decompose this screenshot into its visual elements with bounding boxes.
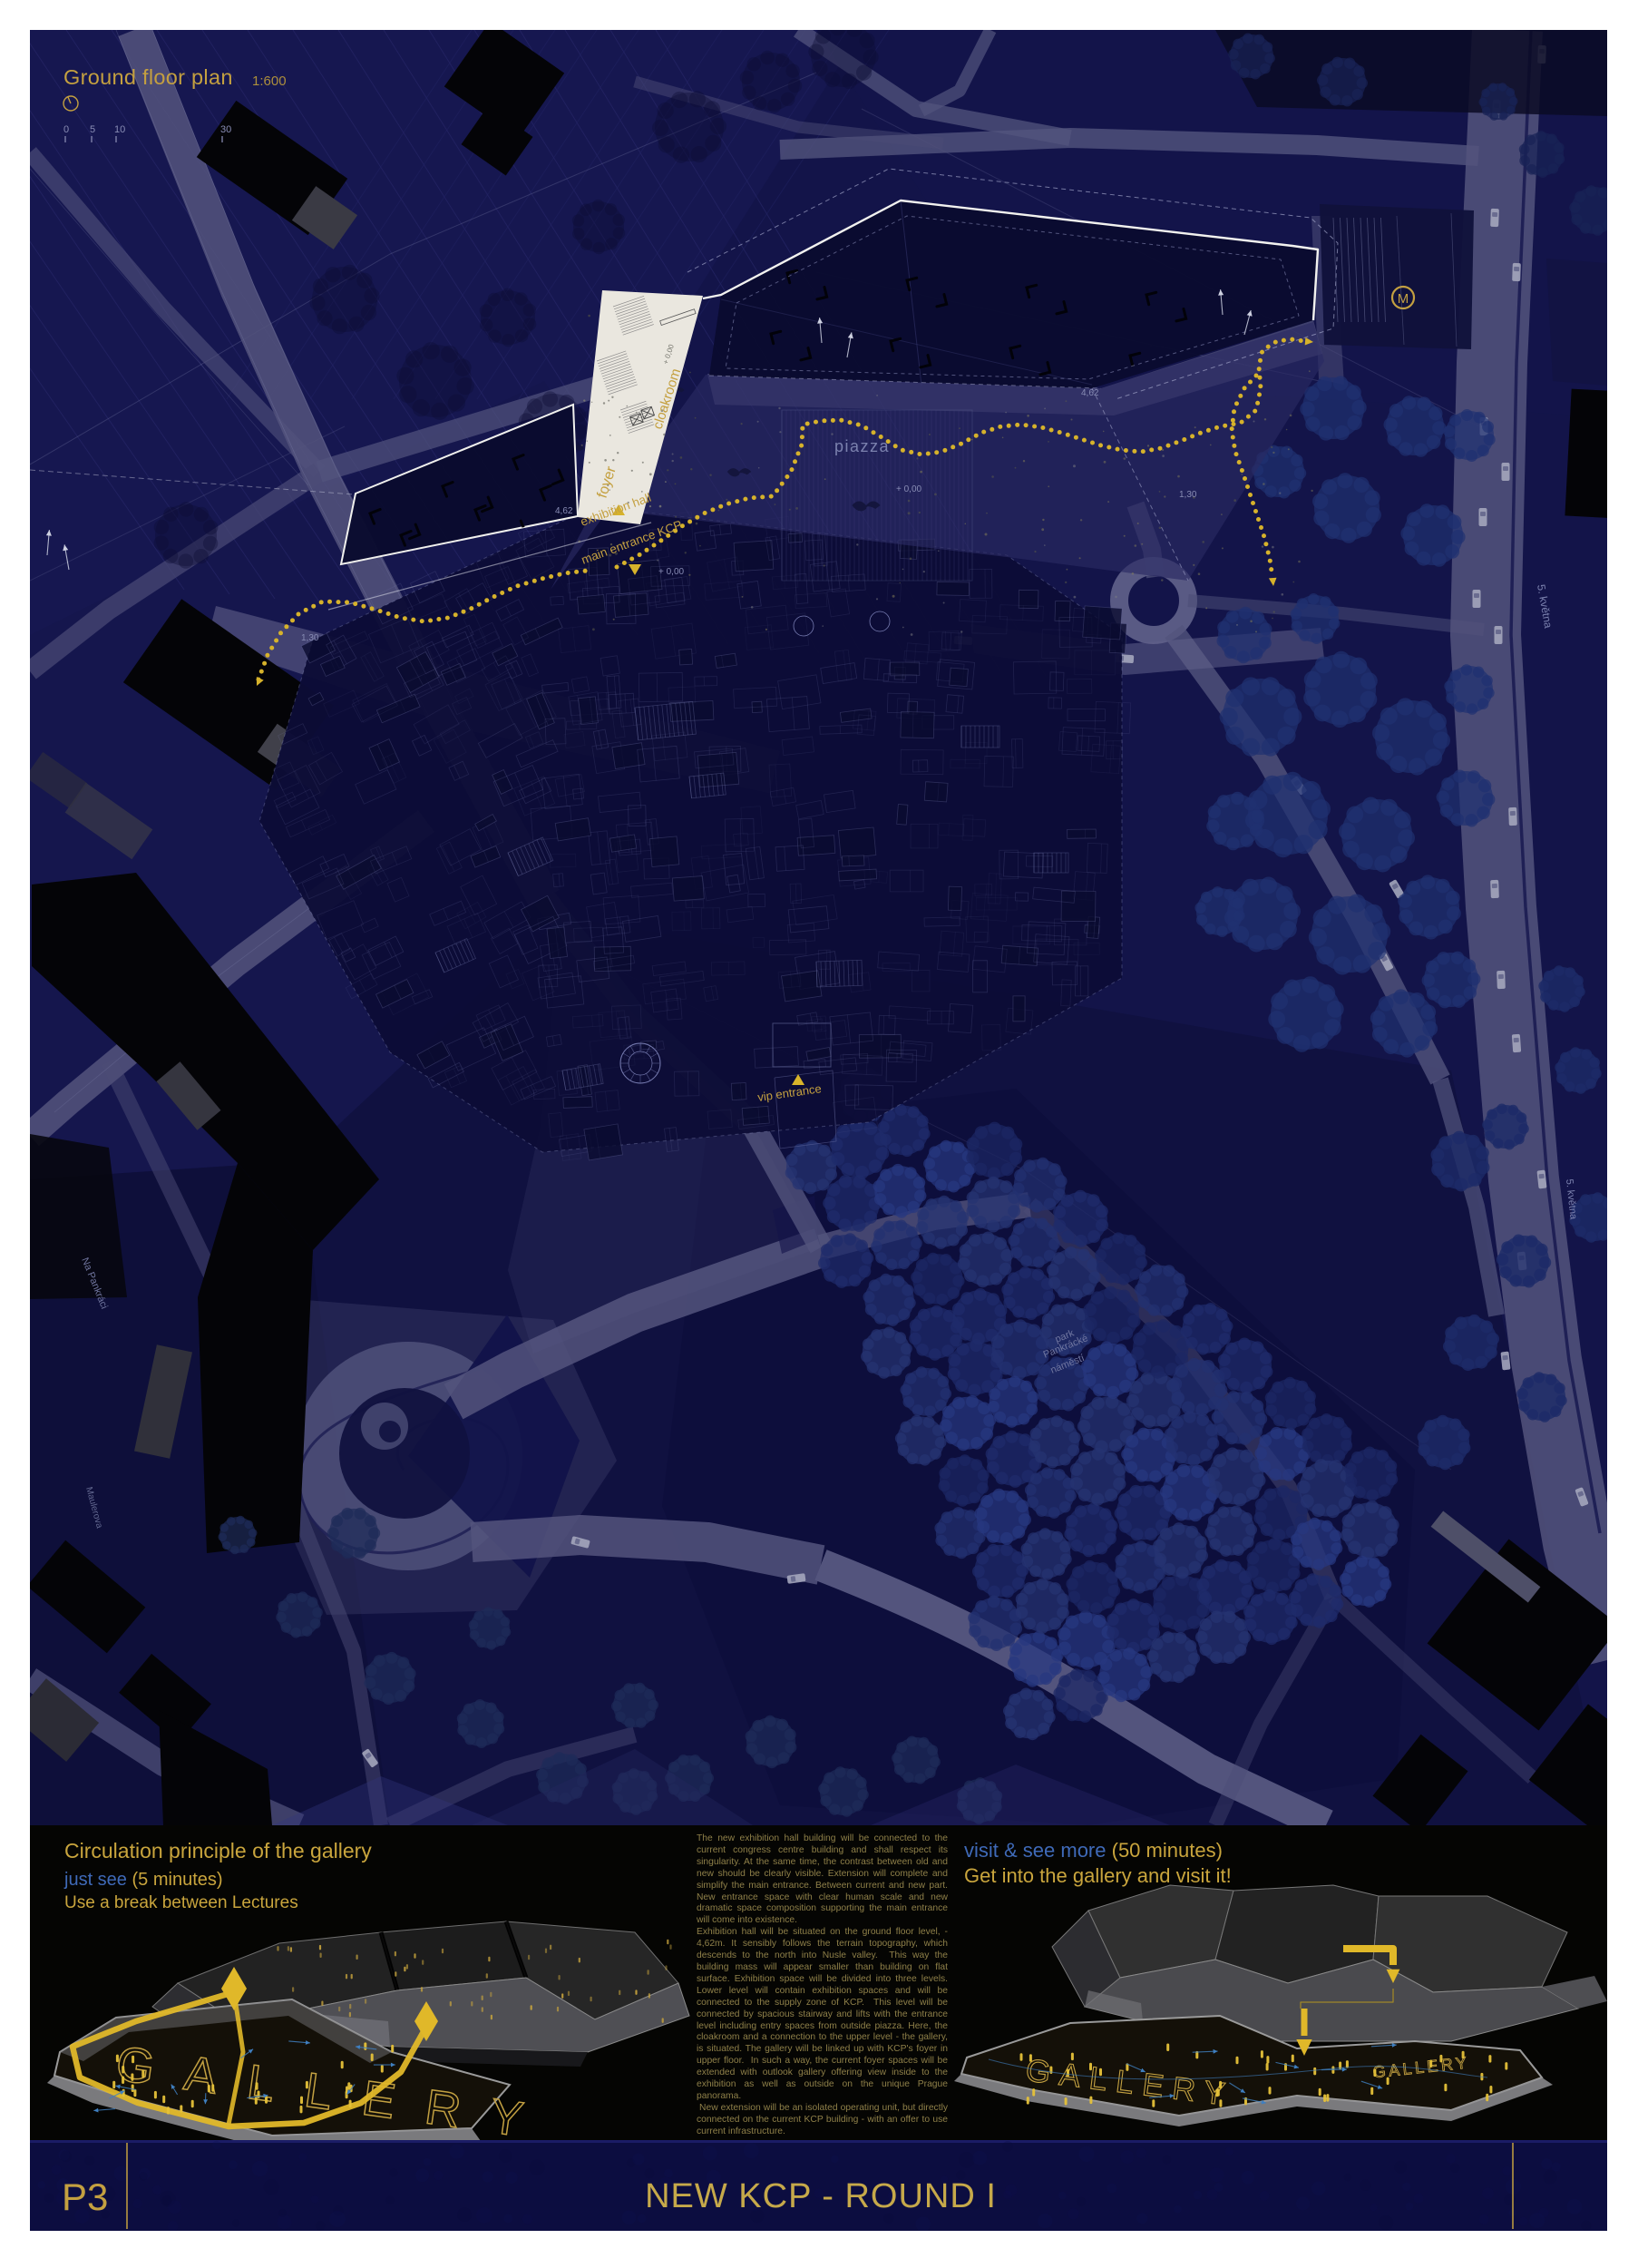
svg-text:1,30: 1,30 <box>301 633 319 643</box>
svg-text:+ 0,00: + 0,00 <box>896 484 922 494</box>
svg-text:Ground floor plan: Ground floor plan <box>63 65 233 89</box>
svg-text:0: 0 <box>63 124 69 135</box>
svg-text:1,30: 1,30 <box>1179 490 1197 500</box>
svg-text:piazza: piazza <box>834 437 890 455</box>
svg-text:10: 10 <box>114 124 125 135</box>
svg-text:30: 30 <box>220 124 231 135</box>
svg-text:+ 0,00: + 0,00 <box>658 567 685 577</box>
svg-text:4,62: 4,62 <box>555 506 573 516</box>
svg-text:M: M <box>1398 291 1409 307</box>
svg-text:P3: P3 <box>62 2175 108 2218</box>
svg-text:NEW KCP - ROUND I: NEW KCP - ROUND I <box>645 2177 997 2215</box>
svg-text:5: 5 <box>90 124 95 135</box>
svg-text:1:600: 1:600 <box>252 73 287 89</box>
